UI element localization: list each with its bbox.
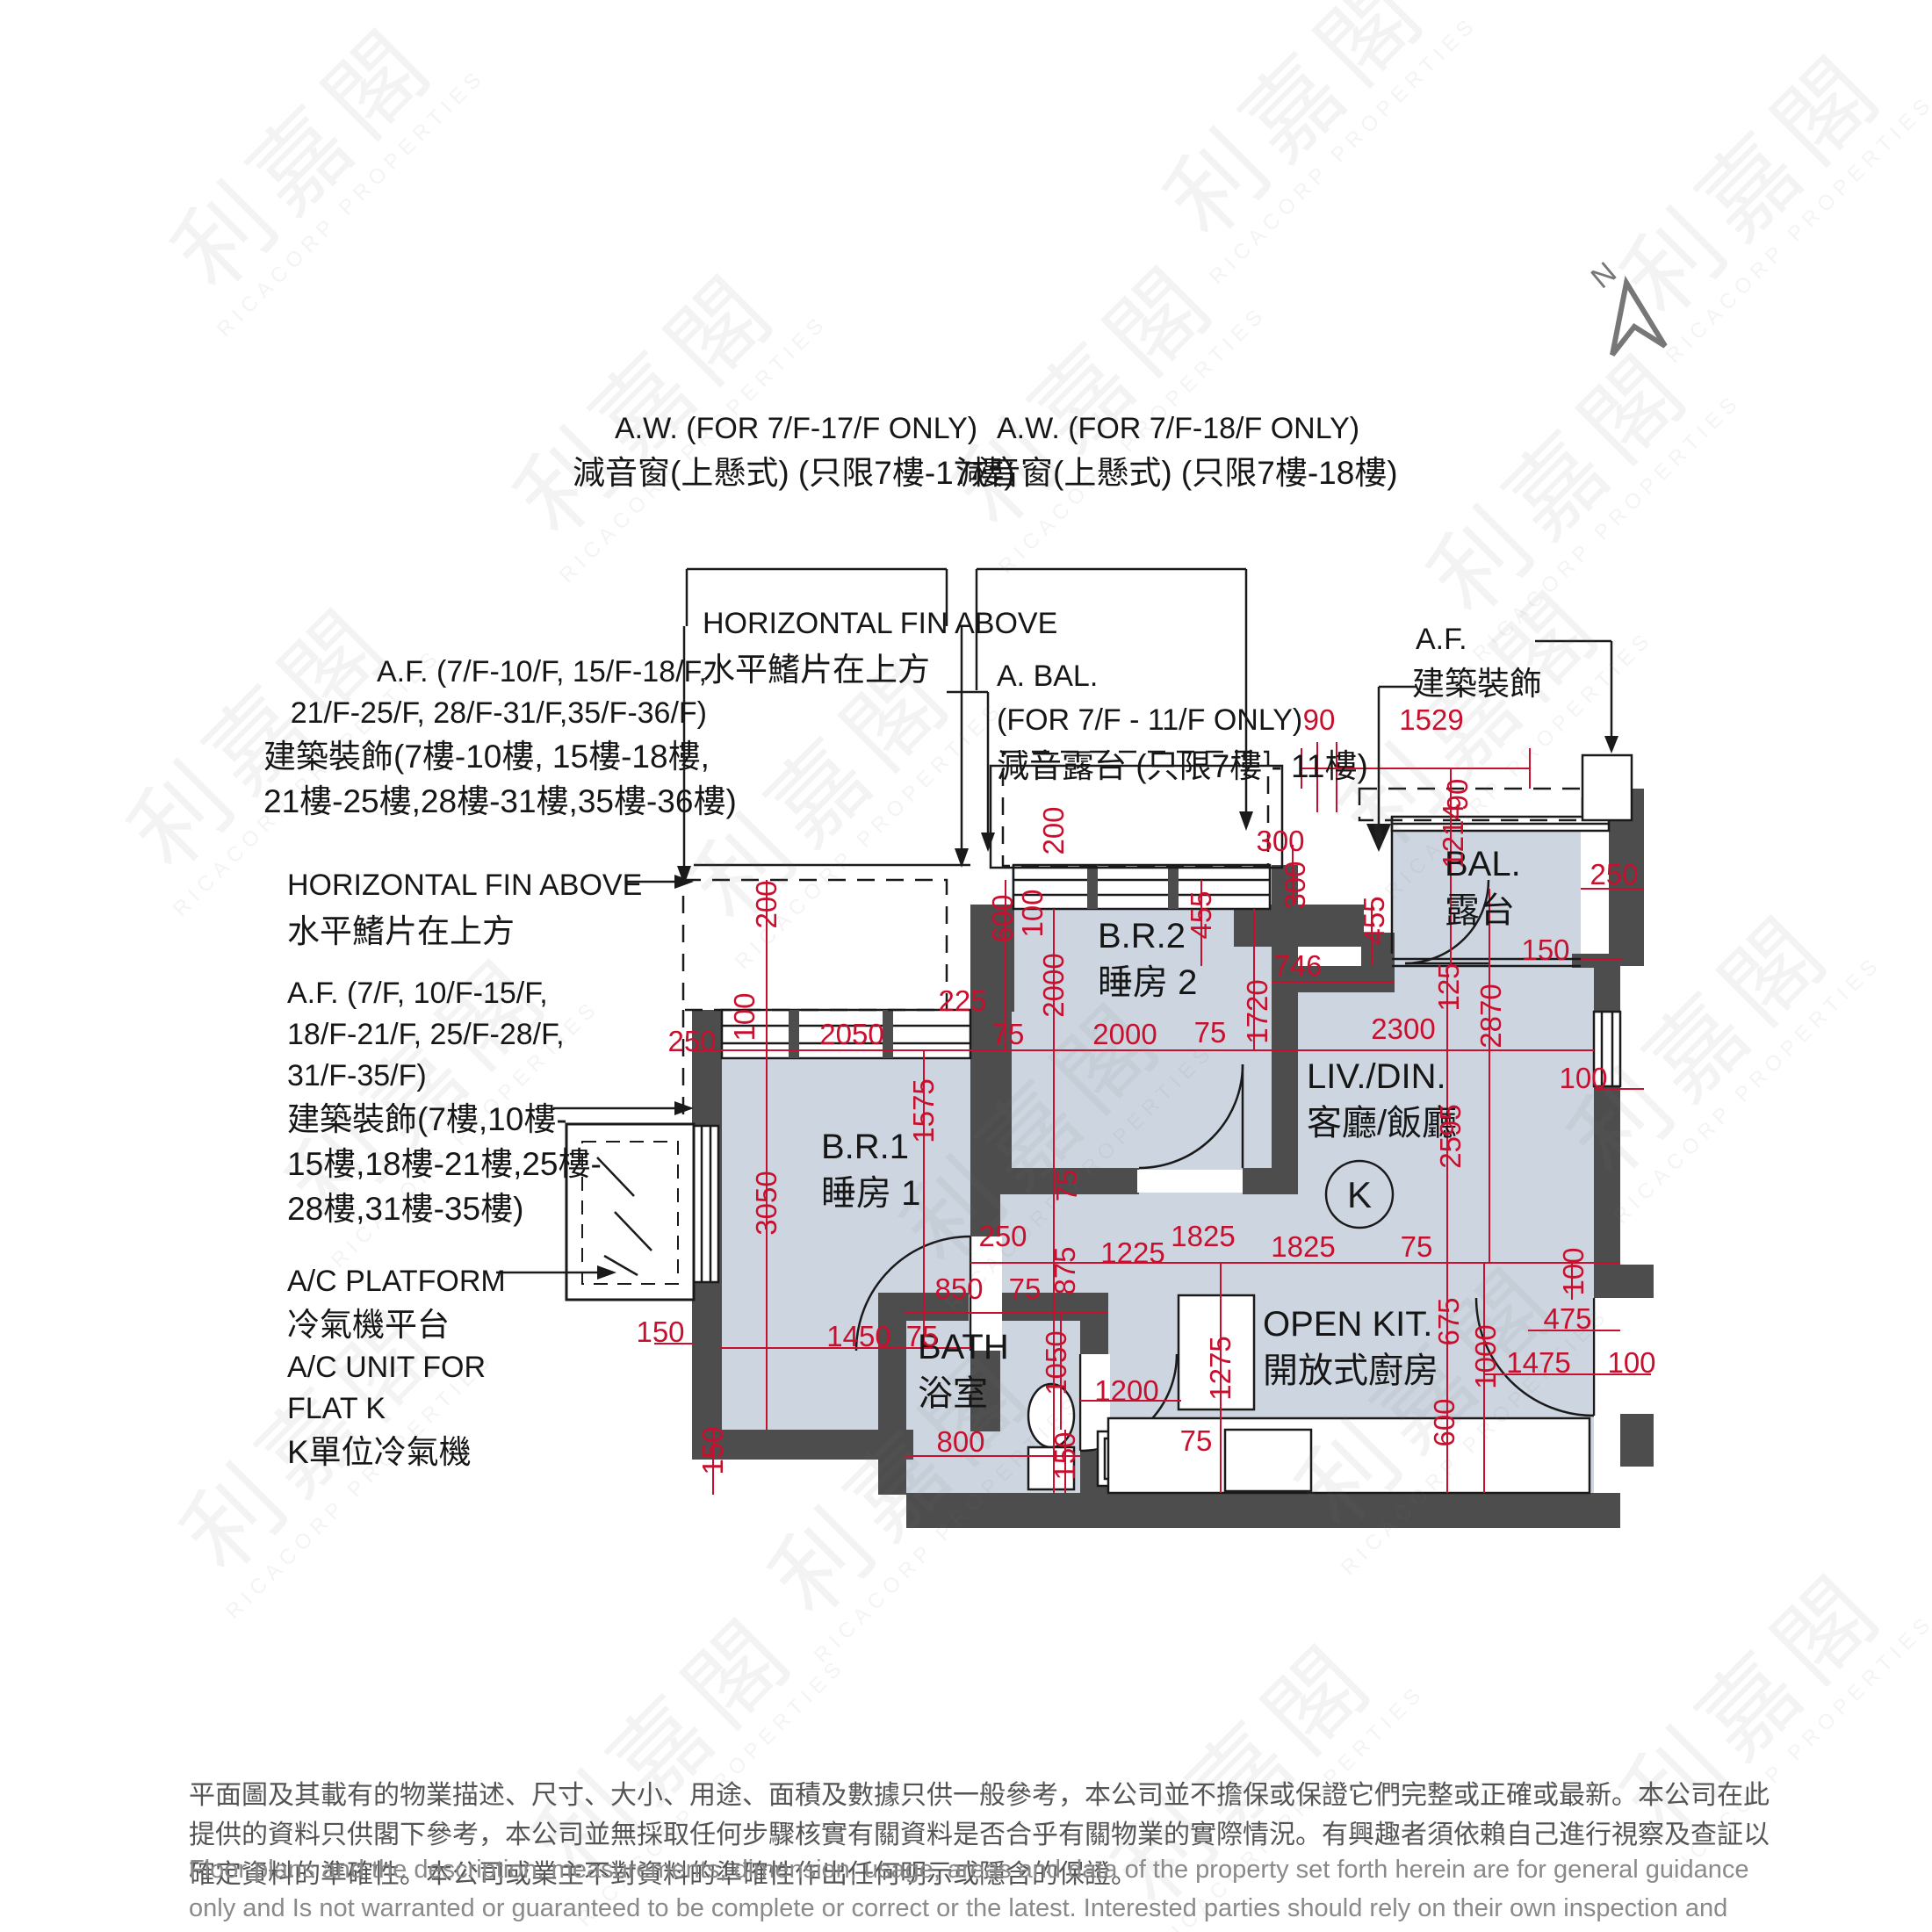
annotation-ac-line4: FLAT K (287, 1388, 506, 1430)
dimension-label: 875 (1049, 1246, 1082, 1294)
dimension-label: 150 (1049, 1431, 1082, 1480)
dimension-label: 2000 (1092, 1018, 1157, 1051)
dimension-label: 125 (1432, 962, 1466, 1011)
dimension-label: 1000 (1469, 1324, 1503, 1388)
annotation-layer: A.W. (FOR 7/F-17/F ONLY) 減音窗(上懸式) (只限7樓-… (0, 0, 1932, 1932)
dimension-label: 150 (1521, 934, 1569, 967)
room-label: OPEN KIT.開放式廚房 (1263, 1301, 1438, 1395)
dimension-label: 600 (1428, 1398, 1461, 1446)
annotation-hfin-center-en: HORIZONTAL FIN ABOVE (703, 604, 1057, 645)
dimension-label: 1200 (1094, 1374, 1158, 1408)
annotation-af-tr-zh: 建築裝飾 (1412, 662, 1542, 706)
dimension-label: 1825 (1171, 1220, 1235, 1253)
dimension-label: 1225 (1100, 1236, 1164, 1270)
dimension-label: 1214 (1437, 804, 1470, 868)
dimension-label: 100 (1607, 1346, 1655, 1380)
annotation-aw2-zh: 減音窗(上懸式) (只限7樓-18樓) (955, 451, 1398, 495)
room-label: B.R.2睡房 2 (1098, 913, 1197, 1006)
annotation-aw1-en: A.W. (FOR 7/F-17/F ONLY) (615, 409, 977, 450)
dimension-label: 1450 (826, 1320, 890, 1353)
annotation-hfin-center-zh: 水平鰭片在上方 (703, 648, 930, 692)
dimension-label: 200 (750, 880, 783, 928)
annotation-hfin-left-en: HORIZONTAL FIN ABOVE (287, 866, 642, 906)
dimension-label: 1050 (1040, 1330, 1073, 1395)
dimension-label: 1825 (1271, 1230, 1335, 1264)
dimension-label: 2000 (1037, 953, 1071, 1017)
dimension-label: 2050 (819, 1018, 883, 1051)
dimension-label: 75 (1401, 1230, 1433, 1264)
dimension-label: 75 (1009, 1272, 1042, 1306)
dimension-label: 250 (667, 1025, 716, 1058)
annotation-ac-line5: K單位冷氣機 (287, 1430, 506, 1474)
dimension-label: 75 (1050, 1170, 1084, 1202)
dimension-label: 300 (1256, 825, 1304, 858)
dimension-label: 75 (906, 1320, 939, 1353)
dimension-label: 455 (1358, 896, 1391, 944)
annotation-aw2-en: A.W. (FOR 7/F-18/F ONLY) (997, 409, 1359, 450)
dimension-label: 150 (696, 1426, 730, 1474)
dimension-label: 1275 (1204, 1336, 1237, 1400)
annotation-af2-line2: 18/F-21/F, 25/F-28/F, (287, 1014, 602, 1056)
annotation-af1-line1: A.F. (7/F-10/F, 15/F-18/F, (263, 652, 707, 693)
dimension-label: 2300 (1371, 1013, 1435, 1046)
dimension-label: 3050 (750, 1171, 783, 1235)
dimension-label: 2595 (1434, 1104, 1467, 1168)
annotation-af1-line3: 建築裝飾(7樓-10樓, 15樓-18樓, (263, 734, 707, 779)
room-label-zh: 開放式廚房 (1263, 1348, 1438, 1395)
annotation-abal-2: (FOR 7/F - 11/F ONLY) (997, 701, 1302, 741)
floorplan-page: K (0, 0, 1932, 1932)
annotation-ac-platform: A/C PLATFORM 冷氣機平台 A/C UNIT FOR FLAT K K… (287, 1261, 506, 1474)
dimension-label: 75 (1194, 1016, 1227, 1049)
room-label-en: B.R.1 (821, 1124, 920, 1171)
dimension-label: 100 (728, 992, 761, 1041)
dimension-label: 800 (936, 1425, 984, 1459)
dimension-label: 300 (1279, 861, 1312, 909)
annotation-ac-line3: A/C UNIT FOR (287, 1347, 506, 1388)
annotation-af-tr-en: A.F. (1416, 620, 1467, 660)
annotation-af1-line4: 21樓-25樓,28樓-31樓,35樓-36樓) (263, 779, 707, 824)
annotation-af2-line6: 28樓,31樓-35樓) (287, 1186, 602, 1231)
room-label-en: LIV./DIN. (1307, 1054, 1457, 1100)
dimension-label: 1720 (1241, 979, 1274, 1043)
dimension-label: 75 (1180, 1424, 1213, 1458)
dimension-label: 455 (1185, 890, 1218, 939)
annotation-af2-line4: 建築裝飾(7樓,10樓- (287, 1097, 602, 1142)
dimension-label: 746 (1273, 949, 1322, 983)
dimension-label: 200 (1037, 806, 1071, 854)
annotation-ac-line1: A/C PLATFORM (287, 1261, 506, 1302)
annotation-af1: A.F. (7/F-10/F, 15/F-18/F, 21/F-25/F, 28… (263, 652, 707, 824)
dimension-label: 75 (992, 1018, 1025, 1051)
annotation-ac-line2: 冷氣機平台 (287, 1302, 506, 1347)
dimension-label: 1529 (1399, 703, 1463, 737)
dimension-label: 100 (1557, 1247, 1590, 1295)
dimension-label: 100 (1016, 889, 1049, 937)
annotation-af1-line2: 21/F-25/F, 28/F-31/F,35/F-36/F) (263, 693, 707, 734)
dimension-label: 1475 (1506, 1346, 1570, 1380)
room-label-zh: 浴室 (918, 1371, 1009, 1417)
annotation-af2-line5: 15樓,18樓-21樓,25樓- (287, 1142, 602, 1186)
annotation-aw1-zh: 減音窗(上懸式) (只限7樓-17樓) (573, 451, 1015, 495)
annotation-af2-line3: 31/F-35/F) (287, 1056, 602, 1097)
dimension-label: 100 (1559, 1062, 1607, 1095)
dimension-label: 1575 (907, 1078, 941, 1143)
room-label-zh: 露台 (1445, 888, 1521, 934)
room-label-en: OPEN KIT. (1263, 1301, 1438, 1348)
dimension-label: 600 (986, 894, 1020, 942)
dimension-label: 2870 (1474, 984, 1508, 1048)
annotation-af2: A.F. (7/F, 10/F-15/F, 18/F-21/F, 25/F-28… (287, 973, 602, 1231)
dimension-label: 225 (938, 984, 986, 1018)
dimension-label: 150 (636, 1316, 684, 1349)
room-label-en: B.R.2 (1098, 913, 1197, 960)
room-label-zh: 睡房 1 (821, 1171, 920, 1217)
annotation-hfin-left-zh: 水平鰭片在上方 (287, 910, 515, 954)
dimension-label: 675 (1432, 1297, 1466, 1345)
room-label: B.R.1睡房 1 (821, 1124, 920, 1217)
annotation-abal-1: A. BAL. (997, 657, 1098, 697)
dimension-label: 90 (1303, 703, 1336, 737)
room-label-zh: 睡房 2 (1098, 960, 1197, 1006)
dimension-label: 475 (1543, 1302, 1591, 1336)
disclaimer-en: Floor plans and the description, measure… (189, 1851, 1770, 1932)
dimension-label: 250 (978, 1220, 1027, 1253)
annotation-af2-line1: A.F. (7/F, 10/F-15/F, (287, 973, 602, 1014)
dimension-label: 850 (934, 1272, 983, 1306)
dimension-label: 250 (1590, 858, 1638, 891)
annotation-abal-3: 減音露台 (只限7樓 - 11樓) (997, 745, 1368, 789)
